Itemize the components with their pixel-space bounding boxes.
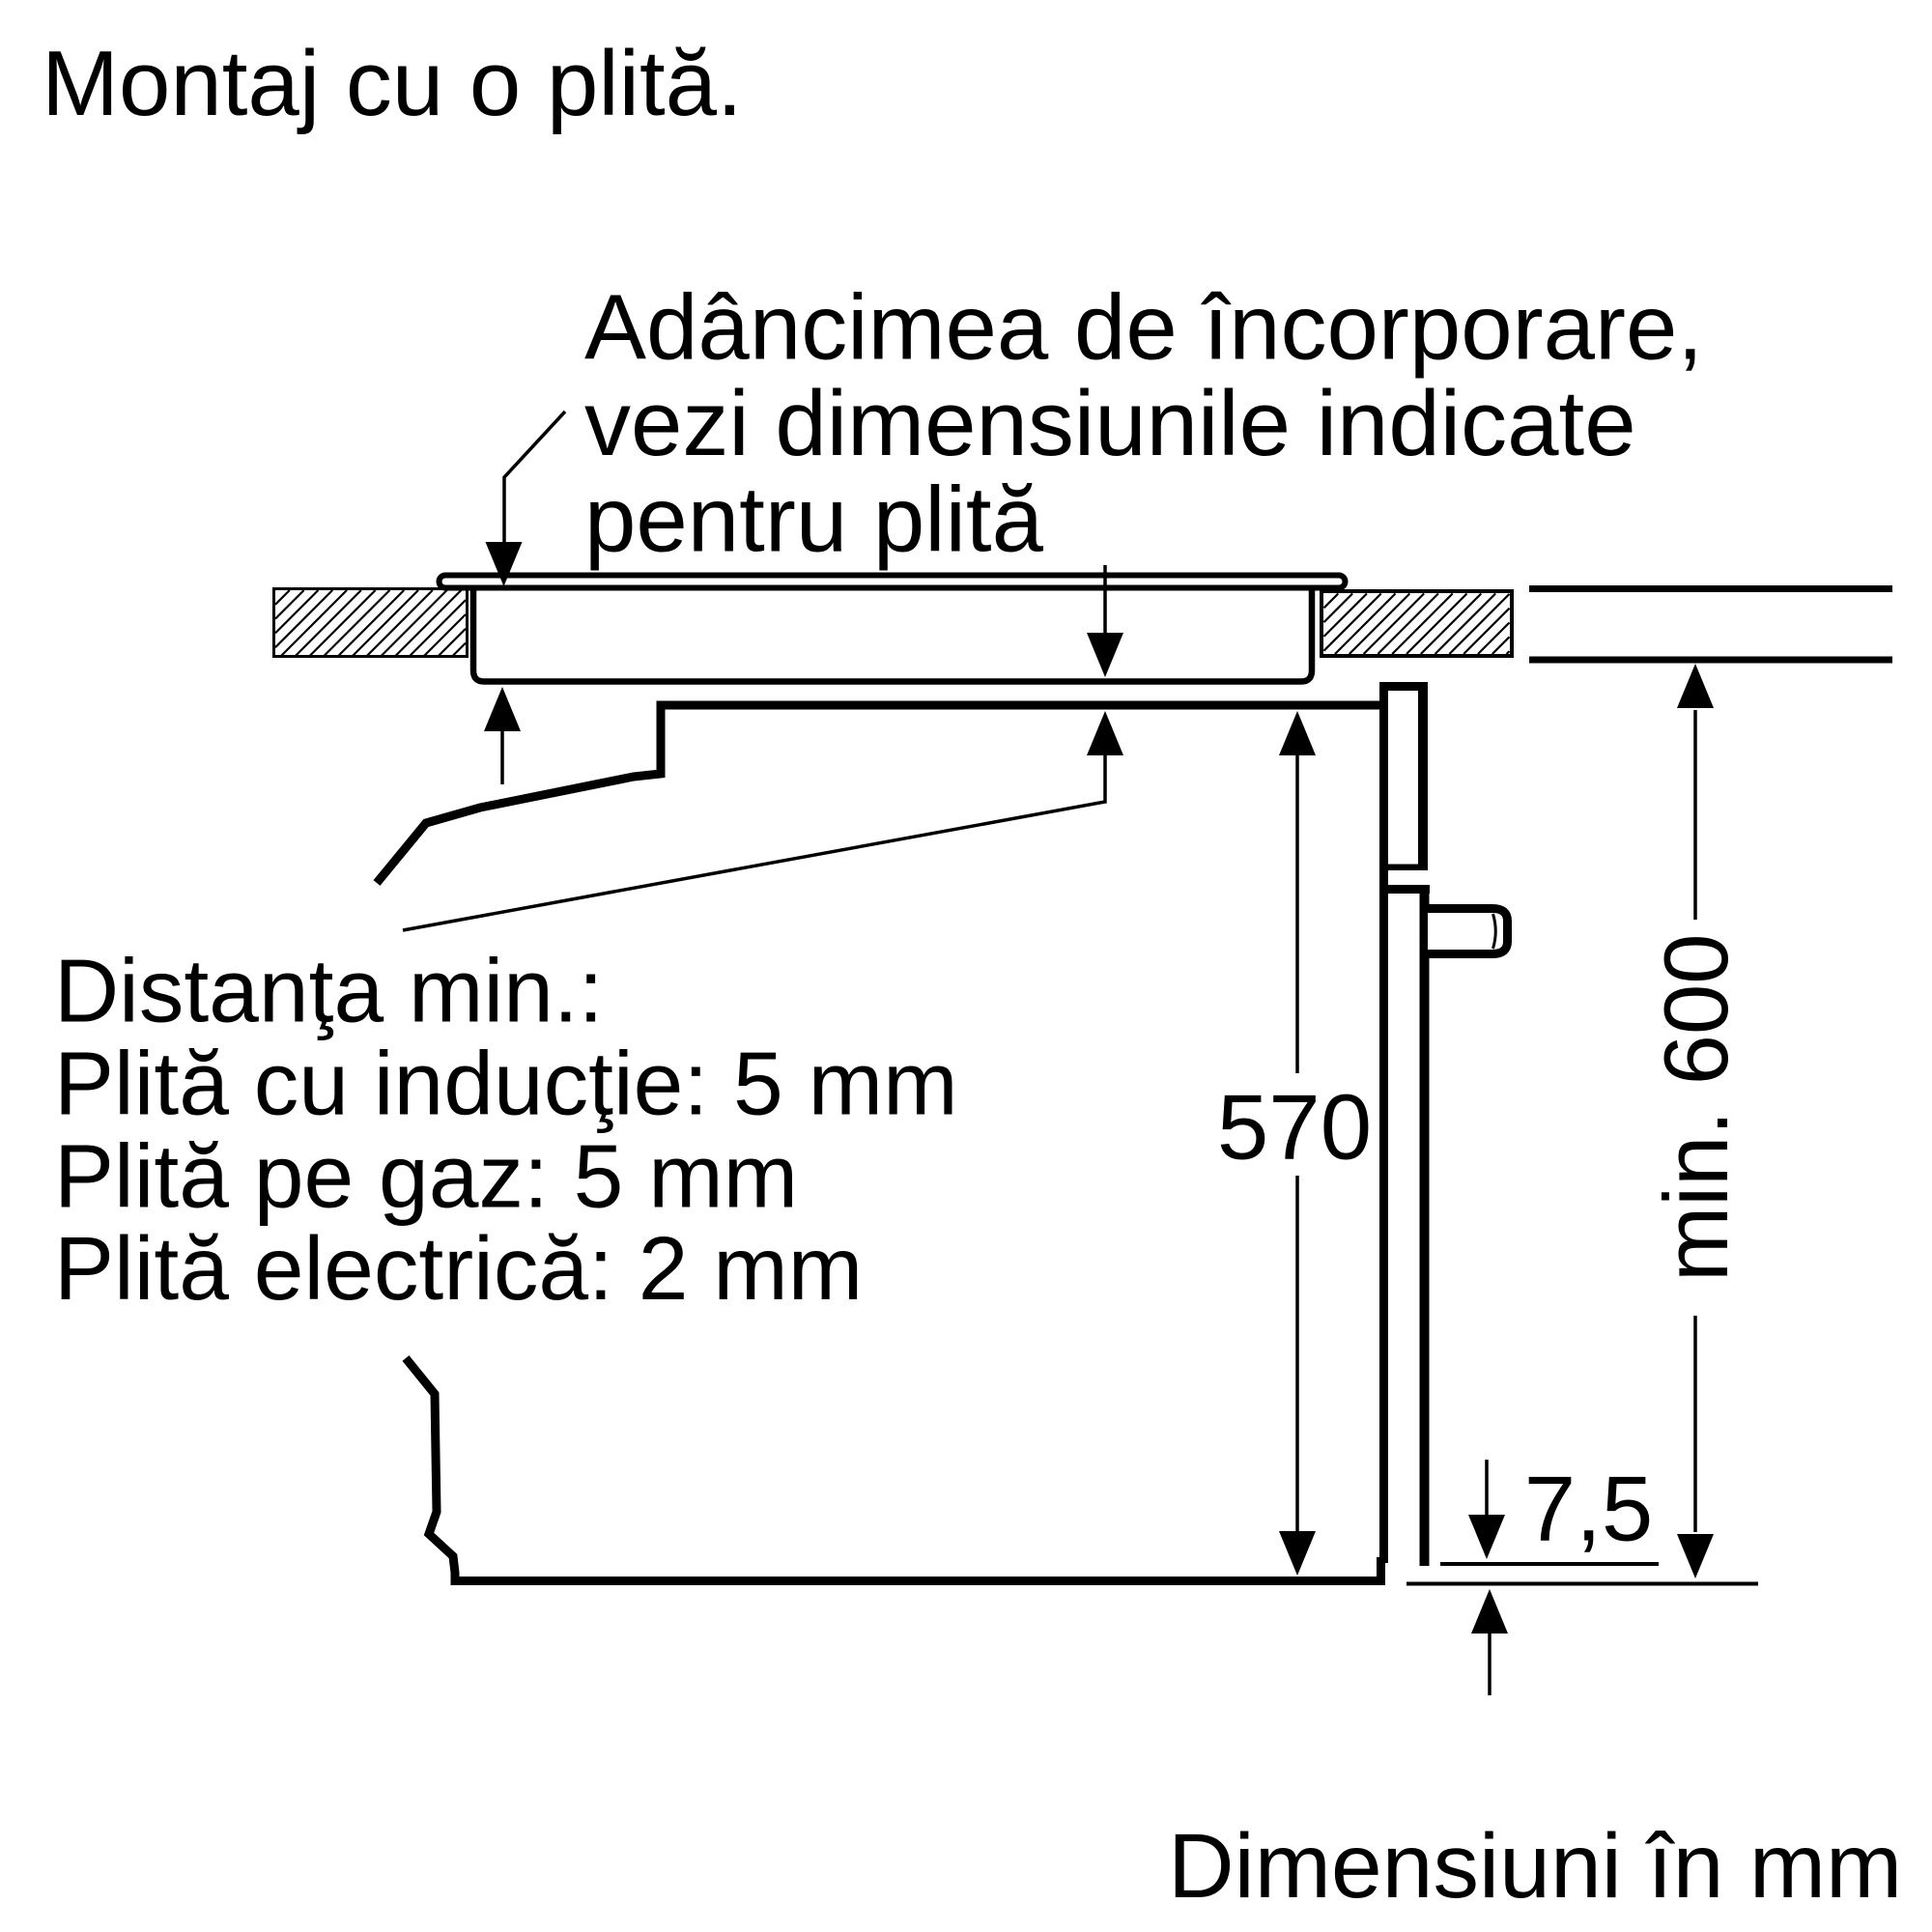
svg-text:min. 600: min. 600 <box>1645 933 1747 1282</box>
svg-text:Plită pe gaz: 5 mm: Plită pe gaz: 5 mm <box>54 1125 798 1226</box>
svg-text:Plită cu inducţie: 5 mm: Plită cu inducţie: 5 mm <box>54 1033 958 1133</box>
svg-text:Distanţa min.:: Distanţa min.: <box>54 941 604 1041</box>
svg-text:Plită electrică: 2 mm: Plită electrică: 2 mm <box>54 1218 863 1319</box>
svg-text:vezi dimensiunile indicate: vezi dimensiunile indicate <box>584 372 1636 475</box>
svg-text:Montaj cu o plită.: Montaj cu o plită. <box>42 32 743 135</box>
svg-text:7,5: 7,5 <box>1524 1458 1653 1561</box>
svg-text:pentru plită: pentru plită <box>584 469 1044 572</box>
svg-text:Adâncimea de încorporare,: Adâncimea de încorporare, <box>584 276 1703 380</box>
svg-text:Dimensiuni în mm: Dimensiuni în mm <box>1168 1815 1902 1918</box>
svg-text:570: 570 <box>1217 1076 1372 1179</box>
